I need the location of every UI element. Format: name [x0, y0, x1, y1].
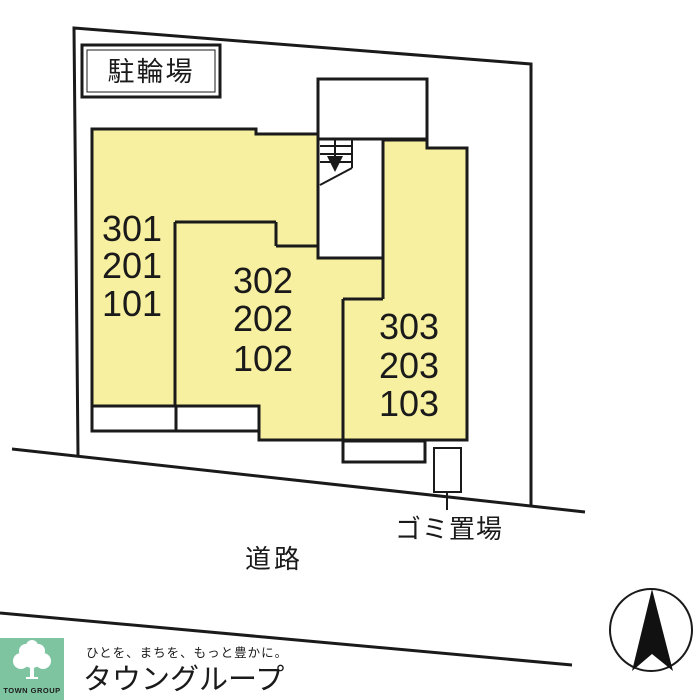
- logo-tagline: ひとを、まちを、もっと豊かに。: [86, 646, 288, 660]
- stairwell-upper-block: [318, 79, 427, 139]
- road-label: 道路: [245, 544, 303, 574]
- unit-label-101: 101: [102, 283, 162, 324]
- unit-label-203: 203: [379, 345, 439, 386]
- unit-label-103: 103: [379, 383, 439, 424]
- unit-label-301: 301: [102, 208, 162, 249]
- unit-label-201: 201: [102, 245, 162, 286]
- unit-label-102: 102: [233, 338, 293, 379]
- logo-badge-text: TOWN GROUP: [3, 686, 60, 695]
- unit-label-303: 303: [379, 306, 439, 347]
- entrance-porch-middle: [176, 406, 259, 431]
- town-group-logo: TOWN GROUP ひとを、まちを、もっと豊かに。 タウングループ: [0, 638, 288, 700]
- entrance-porch-left: [92, 406, 176, 431]
- stair-down-arrow-icon: [327, 156, 343, 172]
- staircase-icon: [320, 139, 352, 185]
- unit-labels-left: 301 201 101: [102, 208, 162, 324]
- road-edge-upper-line: [12, 449, 585, 512]
- unit-label-202: 202: [233, 298, 293, 339]
- north-compass-icon: [610, 589, 692, 671]
- unit-label-302: 302: [233, 260, 293, 301]
- unit-labels-right: 303 203 103: [379, 306, 439, 424]
- site-plan-canvas: 駐輪場 301 201 101 302 202 102 303 203 103 …: [0, 0, 700, 700]
- garbage-label: ゴミ置場: [395, 514, 503, 544]
- stair-diagonal-line: [320, 168, 352, 185]
- bicycle-parking-box: 駐輪場: [82, 45, 220, 97]
- unit-labels-middle: 302 202 102: [233, 260, 293, 379]
- logo-brand-text: タウングループ: [83, 663, 284, 696]
- entrance-porch-right: [343, 441, 425, 462]
- garbage-box: [434, 448, 461, 492]
- bicycle-parking-label: 駐輪場: [108, 57, 195, 87]
- site-plan-page: 駐輪場 301 201 101 302 202 102 303 203 103 …: [0, 0, 700, 700]
